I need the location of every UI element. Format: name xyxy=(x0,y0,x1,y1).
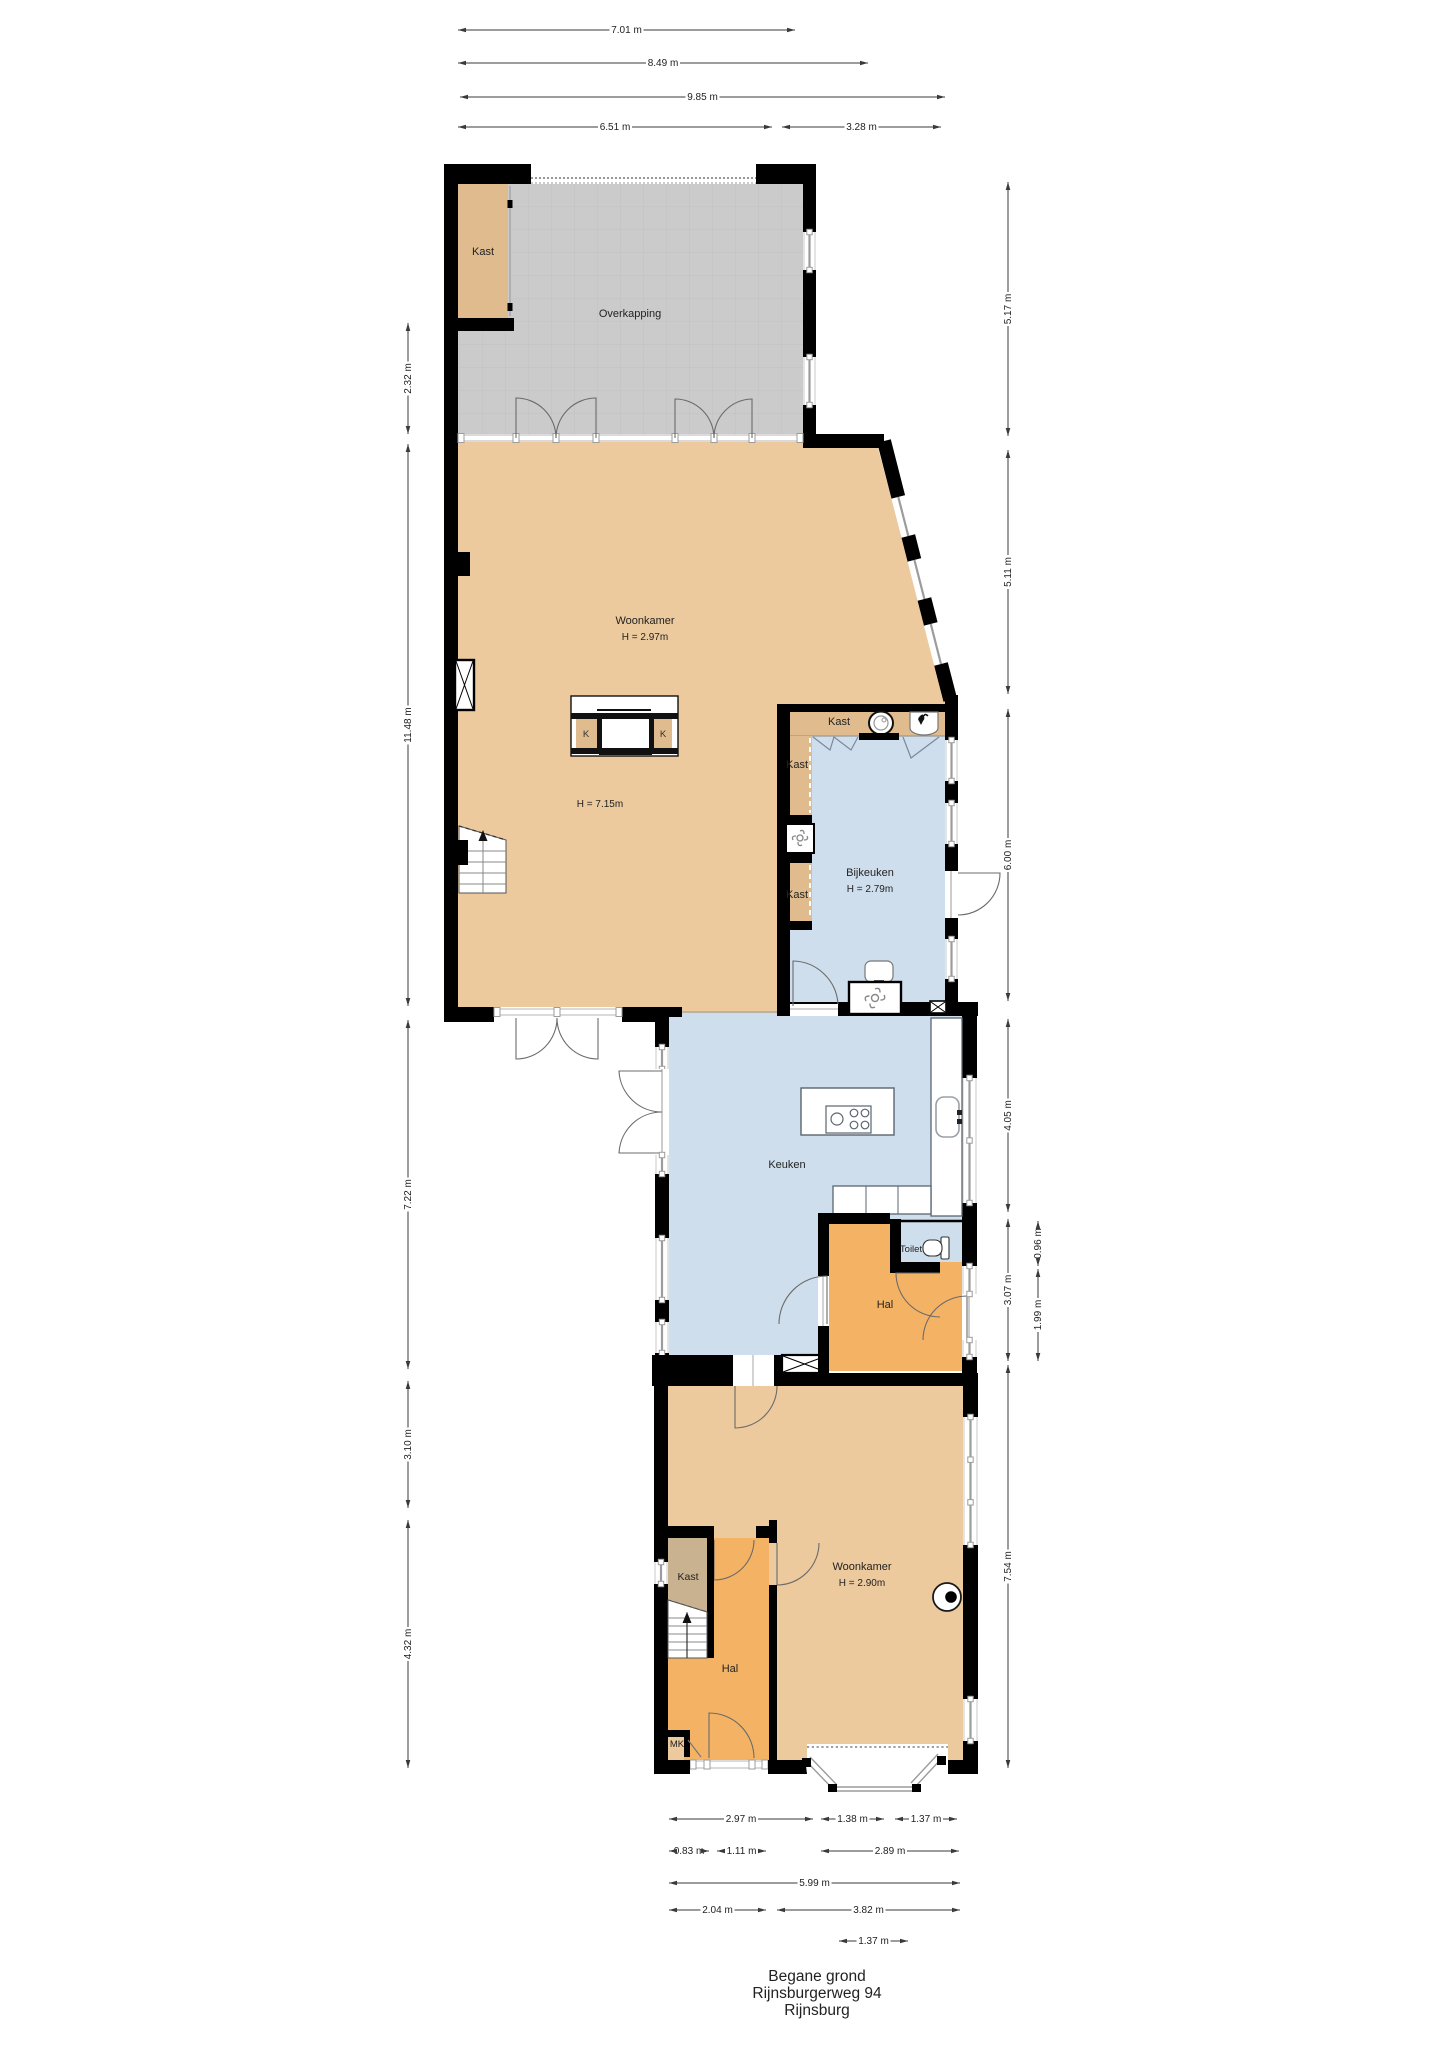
svg-text:6.00 m: 6.00 m xyxy=(1003,840,1014,871)
svg-text:8.49 m: 8.49 m xyxy=(648,58,679,69)
svg-text:Keuken: Keuken xyxy=(768,1159,805,1171)
svg-text:Rijnsburg: Rijnsburg xyxy=(784,2002,849,2019)
svg-text:Woonkamer: Woonkamer xyxy=(832,1561,891,1573)
svg-text:Begane grond: Begane grond xyxy=(768,1968,865,1985)
svg-text:5.11 m: 5.11 m xyxy=(1003,557,1014,587)
svg-text:H = 2.97m: H = 2.97m xyxy=(622,632,668,643)
svg-text:7.01 m: 7.01 m xyxy=(611,25,642,36)
svg-text:K: K xyxy=(660,729,667,740)
svg-text:Bijkeuken: Bijkeuken xyxy=(846,867,894,879)
svg-text:4.32 m: 4.32 m xyxy=(403,1629,414,1660)
svg-text:Toilet: Toilet xyxy=(900,1244,923,1255)
svg-text:11.48 m: 11.48 m xyxy=(403,707,414,742)
svg-text:4.05 m: 4.05 m xyxy=(1003,1100,1014,1131)
svg-text:5.99 m: 5.99 m xyxy=(799,1878,830,1889)
svg-text:H = 2.90m: H = 2.90m xyxy=(839,1578,885,1589)
svg-text:5.17 m: 5.17 m xyxy=(1003,294,1014,325)
svg-text:Rijnsburgerweg 94: Rijnsburgerweg 94 xyxy=(752,1985,882,2002)
svg-text:1.37 m: 1.37 m xyxy=(911,1814,942,1825)
svg-text:1.99 m: 1.99 m xyxy=(1033,1300,1044,1331)
svg-text:Hal: Hal xyxy=(722,1663,739,1675)
svg-text:7.54 m: 7.54 m xyxy=(1003,1551,1014,1582)
svg-text:3.07 m: 3.07 m xyxy=(1003,1275,1014,1306)
svg-text:2.97 m: 2.97 m xyxy=(726,1814,757,1825)
svg-text:1.38 m: 1.38 m xyxy=(837,1814,868,1825)
svg-text:9.85 m: 9.85 m xyxy=(687,92,718,103)
svg-text:0.96 m: 0.96 m xyxy=(1033,1228,1044,1259)
svg-text:Woonkamer: Woonkamer xyxy=(615,615,674,627)
svg-text:H = 7.15m: H = 7.15m xyxy=(577,799,623,810)
svg-text:3.10 m: 3.10 m xyxy=(403,1429,414,1460)
svg-text:Overkapping: Overkapping xyxy=(599,308,661,320)
svg-text:3.82 m: 3.82 m xyxy=(853,1905,884,1916)
svg-text:Hal: Hal xyxy=(877,1299,894,1311)
svg-text:2.04 m: 2.04 m xyxy=(702,1905,733,1916)
svg-text:Kast: Kast xyxy=(786,759,808,771)
svg-text:Kast: Kast xyxy=(472,246,494,258)
svg-text:Kast: Kast xyxy=(677,1571,698,1583)
svg-text:K: K xyxy=(583,729,590,740)
svg-text:3.28 m: 3.28 m xyxy=(846,122,877,133)
svg-text:1.11 m: 1.11 m xyxy=(727,1846,757,1857)
svg-text:0.83 m: 0.83 m xyxy=(674,1846,705,1857)
svg-text:Kast: Kast xyxy=(786,889,808,901)
svg-text:2.32 m: 2.32 m xyxy=(403,363,414,394)
svg-text:Kast: Kast xyxy=(828,716,850,728)
svg-text:2.89 m: 2.89 m xyxy=(875,1846,906,1857)
svg-text:1.37 m: 1.37 m xyxy=(858,1936,889,1947)
svg-text:H = 2.79m: H = 2.79m xyxy=(847,884,893,895)
svg-text:6.51 m: 6.51 m xyxy=(600,122,631,133)
svg-text:MK: MK xyxy=(670,1739,685,1750)
svg-text:7.22 m: 7.22 m xyxy=(403,1179,414,1210)
